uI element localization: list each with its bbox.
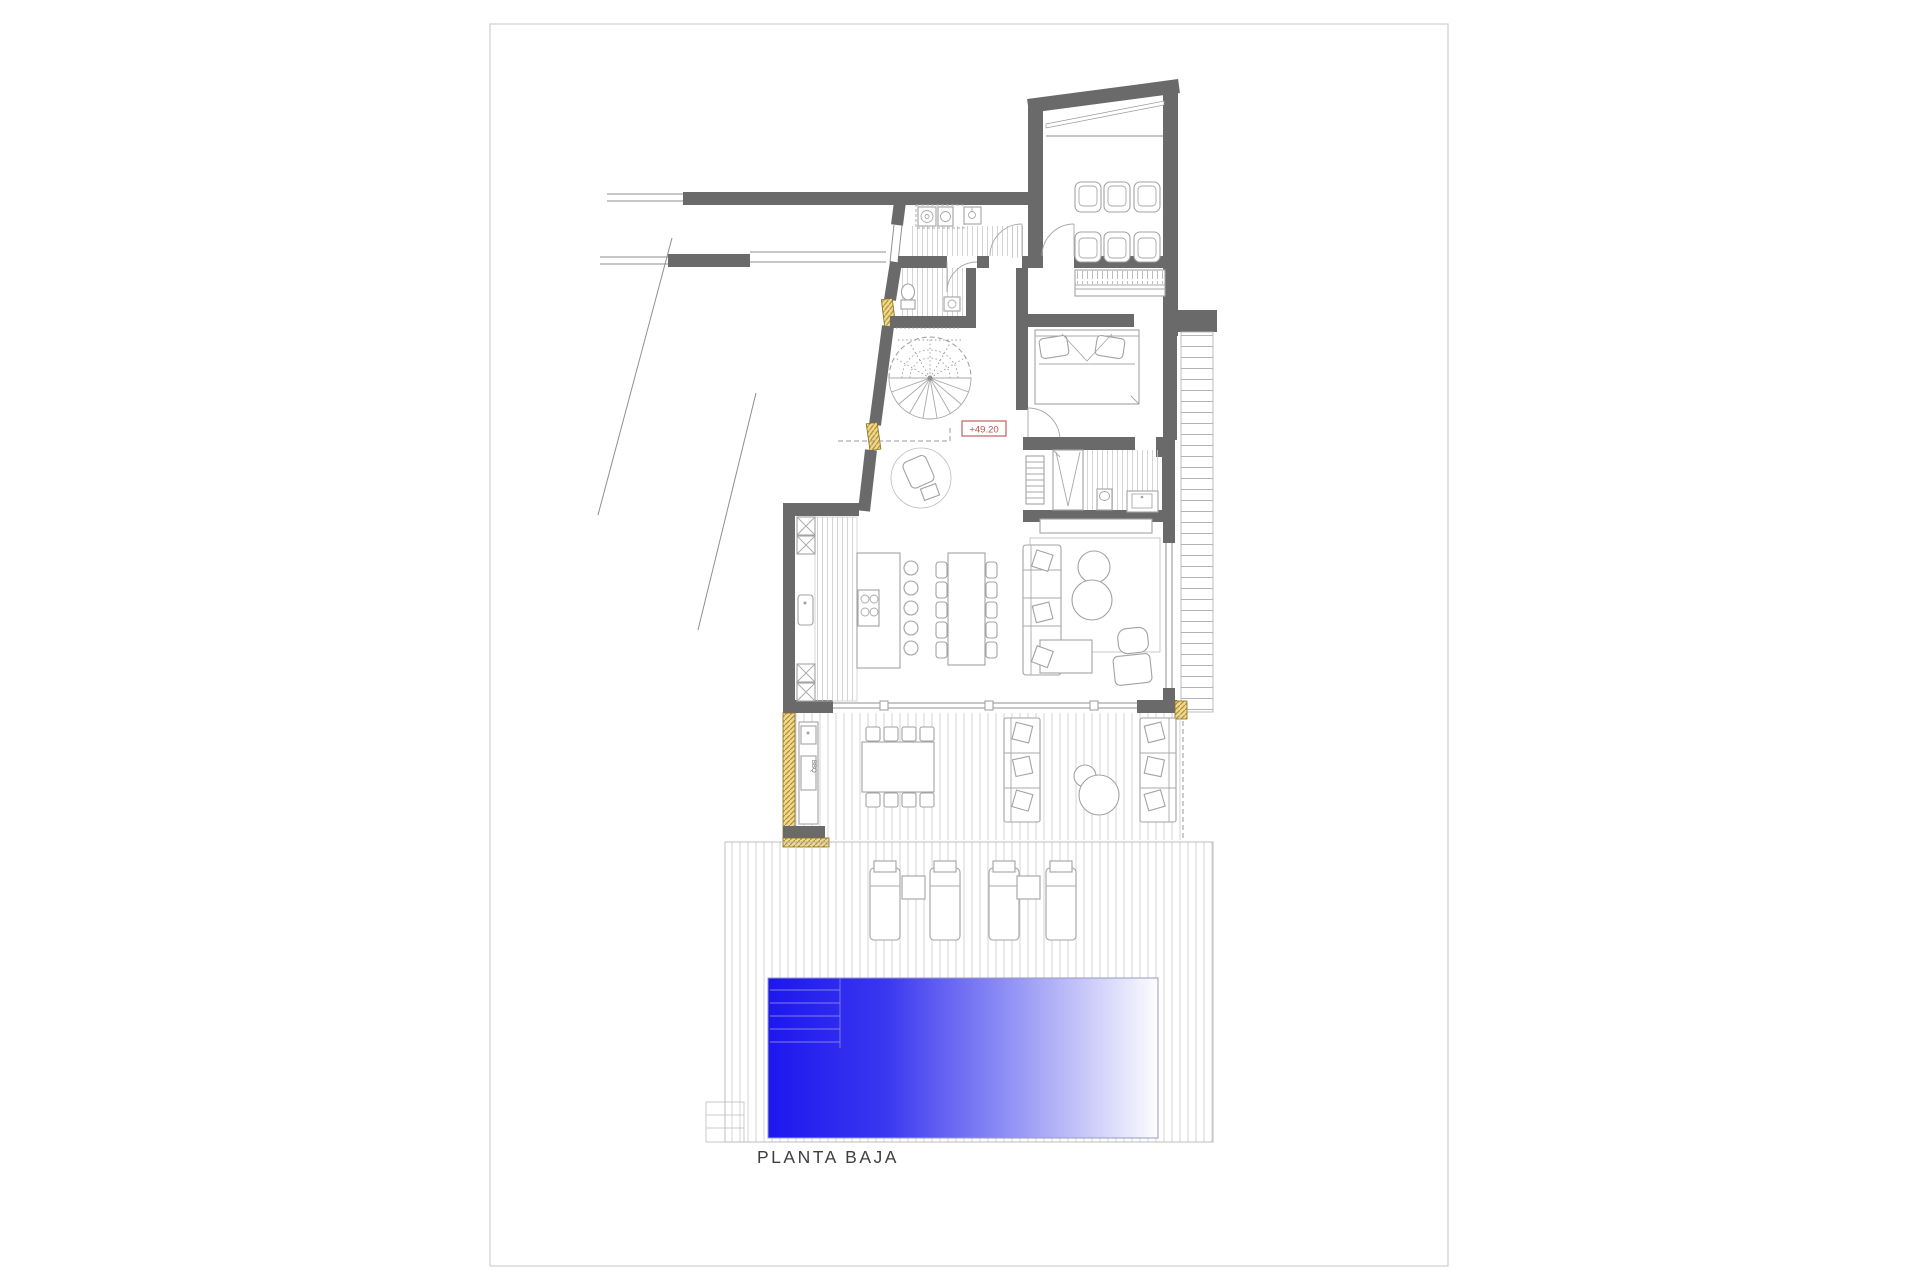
side-table — [1017, 876, 1040, 899]
coffee-table — [1072, 580, 1112, 620]
cushion — [1032, 602, 1053, 623]
sun-deck — [706, 842, 1213, 1142]
coffee-table — [1078, 551, 1110, 583]
elevation-label: +49.20 — [969, 425, 998, 436]
window-marker — [783, 713, 795, 839]
tv-sideboard — [1040, 519, 1152, 533]
utility-sink — [964, 207, 981, 224]
outdoor-dining-table — [862, 742, 934, 792]
bar-stool — [904, 621, 918, 635]
side-table — [902, 876, 925, 899]
sun-lounger — [989, 868, 1019, 940]
terrace: BBQ — [783, 713, 1183, 847]
floor-plan-drawing: +49.20 — [0, 0, 1920, 1280]
wc-room — [890, 262, 977, 328]
armchair — [1117, 626, 1149, 654]
wc-basin — [944, 297, 960, 311]
bbq-label: BBQ — [810, 760, 816, 773]
bar-stool — [904, 581, 918, 595]
plan-title: PLANTA BAJA — [757, 1147, 899, 1167]
swimming-pool — [768, 978, 1158, 1138]
bar-stool — [904, 601, 918, 615]
outdoor-coffee-table — [1079, 775, 1119, 815]
toilet — [902, 284, 915, 300]
sun-lounger — [930, 868, 960, 940]
dining-area — [936, 553, 997, 665]
pillow — [1039, 335, 1070, 359]
floor-plan-page: +49.20 — [0, 0, 1920, 1280]
outdoor-sink — [801, 726, 816, 744]
bar-stool — [904, 641, 918, 655]
elevation-marker: +49.20 — [962, 421, 1006, 436]
sun-lounger — [870, 868, 900, 940]
pillow — [1095, 335, 1126, 359]
dining-table — [948, 553, 985, 665]
sun-lounger — [1046, 868, 1076, 940]
bar-stool — [904, 561, 918, 575]
kitchen-sink — [798, 595, 813, 625]
toilet — [1097, 489, 1112, 510]
